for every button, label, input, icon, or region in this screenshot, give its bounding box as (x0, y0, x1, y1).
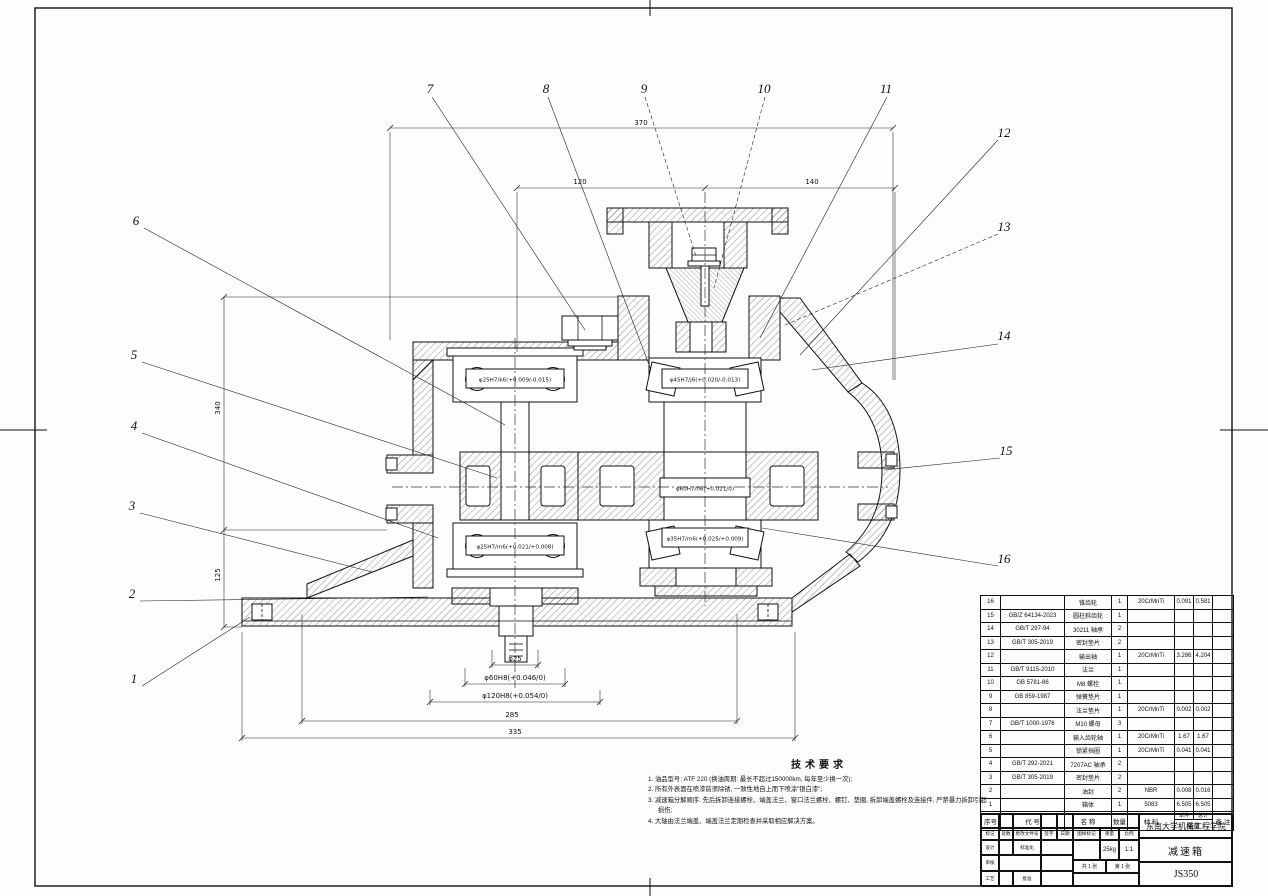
callout-10: 10 (758, 81, 772, 96)
bom-row: 9GB 859-1987弹簧垫片1 (981, 690, 1234, 704)
tech-req-item: 1. 油品型号: ATF 220 (换油周期: 最长不超过150000km, 每… (648, 775, 990, 785)
bom-row: 7GB/T 1000-1976M10 螺母3 (981, 717, 1234, 731)
callout-6: 6 (133, 213, 140, 228)
field-check: 审核 (981, 855, 999, 871)
sheet-number: 第 1 张 (1106, 860, 1139, 873)
part-name: 减速箱 (1139, 838, 1233, 862)
callout-14: 14 (998, 328, 1012, 343)
field-approve: 批准 (1013, 871, 1041, 887)
bom-row: 2油封2NBR0.0080.016 (981, 785, 1234, 799)
callout-8: 8 (543, 81, 550, 96)
dim-top-overall: 370 (634, 119, 647, 127)
bom-row: 15GB/Z 64134-2023圆柱斜齿轮1 (981, 609, 1234, 623)
field-sign: 签字 (1041, 828, 1057, 840)
bom-row: 4GB/T 292-20217207AC 轴承2 (981, 758, 1234, 772)
stage-label: 图样标记 (1073, 828, 1100, 840)
bom-row: 16锥齿轮120CrMnTi0.0910.581 (981, 596, 1234, 610)
drawing-number: JS350 (1139, 862, 1233, 887)
callout-7: 7 (427, 81, 434, 96)
callout-1: 1 (131, 671, 138, 686)
scale-label: 比例 (1119, 828, 1139, 840)
dim-phi60: φ60H8(+0.046/0) (484, 674, 546, 682)
fit-center: φ60H7/h6(+0.021/0) (676, 487, 734, 493)
tech-req-item: 2. 所有外表面在喷漆前须除锈, 一致性地自上而下喷涂"银白漆"; (648, 785, 990, 795)
bom-row: 5锁紧挡圈120CrMnTi0.0410.041 (981, 744, 1234, 758)
bom-row: 14GB/T 297-9430211 轴承2 (981, 623, 1234, 637)
bom-table: 16锥齿轮120CrMnTi0.0910.581 15GB/Z 64134-20… (980, 595, 1234, 831)
gearbox-section-view (242, 192, 900, 688)
dim-285: 285 (505, 711, 518, 719)
tech-req-title: 技术要求 (648, 756, 990, 771)
field-count: 处数 (999, 828, 1013, 840)
fit-right-top: φ45H7/j6(+0.020/-0.013) (670, 378, 741, 384)
dim-left-lower: 125 (214, 568, 222, 581)
weight-label: 重量 (1100, 828, 1119, 840)
bom-row: 12输出轴120CrMnTi3.2864.204 (981, 650, 1234, 664)
bom-row: 11GB/T 9115-2010法兰1 (981, 663, 1234, 677)
tech-req-item: 4. 大轴由法兰端盖、端盖法兰定期检查并采取相应解决方案。 (648, 817, 990, 827)
dim-top-right: 140 (805, 178, 818, 186)
tech-req-item: 3. 减速箱分解顺序: 先后拆卸连接螺栓、端盖法兰、窗口法兰螺栓、螺钉、垫圈, … (648, 796, 990, 817)
callout-16: 16 (998, 551, 1012, 566)
field-process: 工艺 (981, 871, 999, 887)
field-doc-no: 更改文件号 (1013, 828, 1041, 840)
callout-13: 13 (998, 219, 1012, 234)
field-standard: 标准化 (1013, 840, 1041, 855)
bom-row: 13GB/T 305-2019密封垫片2 (981, 636, 1234, 650)
title-block: 标记 处数 更改文件号 签字 日期 设计 标准化 审核 工艺 批准 图样标记 重… (980, 813, 1232, 886)
fit-left-bottom: φ25H7/m6(+0.021/+0.008) (476, 545, 553, 551)
scale-value: 1:1 (1119, 840, 1139, 860)
bom-row: 6输入齿轮轴120CrMnTi1.671.67 (981, 731, 1234, 745)
callout-5: 5 (131, 347, 138, 362)
callout-2: 2 (129, 586, 136, 601)
callout-15: 15 (1000, 443, 1014, 458)
dim-left-upper: 340 (214, 401, 222, 414)
organization: 东南大学机械工程学院 (1139, 814, 1233, 838)
callout-4: 4 (131, 418, 138, 433)
fit-right-bottom: φ35H7/m6(+0.025/+0.009) (666, 537, 743, 543)
callout-11: 11 (880, 81, 892, 96)
oil-plug-hex-head (562, 316, 618, 340)
dim-phi25: φ25 (508, 655, 522, 663)
bom-row: 1箱体150836.5056.505 (981, 798, 1234, 812)
callout-3: 3 (128, 498, 136, 513)
callout-12: 12 (998, 125, 1012, 140)
dimensions (221, 125, 898, 741)
sheets-total: 共 1 张 (1073, 860, 1106, 873)
technical-requirements: 技术要求 1. 油品型号: ATF 220 (换油周期: 最长不超过150000… (648, 756, 990, 827)
field-mark: 标记 (981, 828, 999, 840)
bom-row: 8法兰垫片120CrMnTi0.0020.002 (981, 704, 1234, 718)
bom-row: 10GB 5781-86M8 螺栓1 (981, 677, 1234, 691)
weight-value: 25kg (1100, 840, 1119, 860)
bom-row: 3GB/T 305-2019密封垫片2 (981, 771, 1234, 785)
drawing-sheet: { "callouts": { "top": ["7","8","9","10"… (0, 0, 1268, 896)
dim-335: 335 (508, 728, 521, 736)
field-date: 日期 (1057, 828, 1073, 840)
dim-phi120: φ120H8(+0.054/0) (482, 692, 548, 700)
field-design: 设计 (981, 840, 999, 855)
callout-9: 9 (641, 81, 648, 96)
fit-left-top: φ25H7/k6(+0.009/-0.015) (479, 378, 551, 384)
